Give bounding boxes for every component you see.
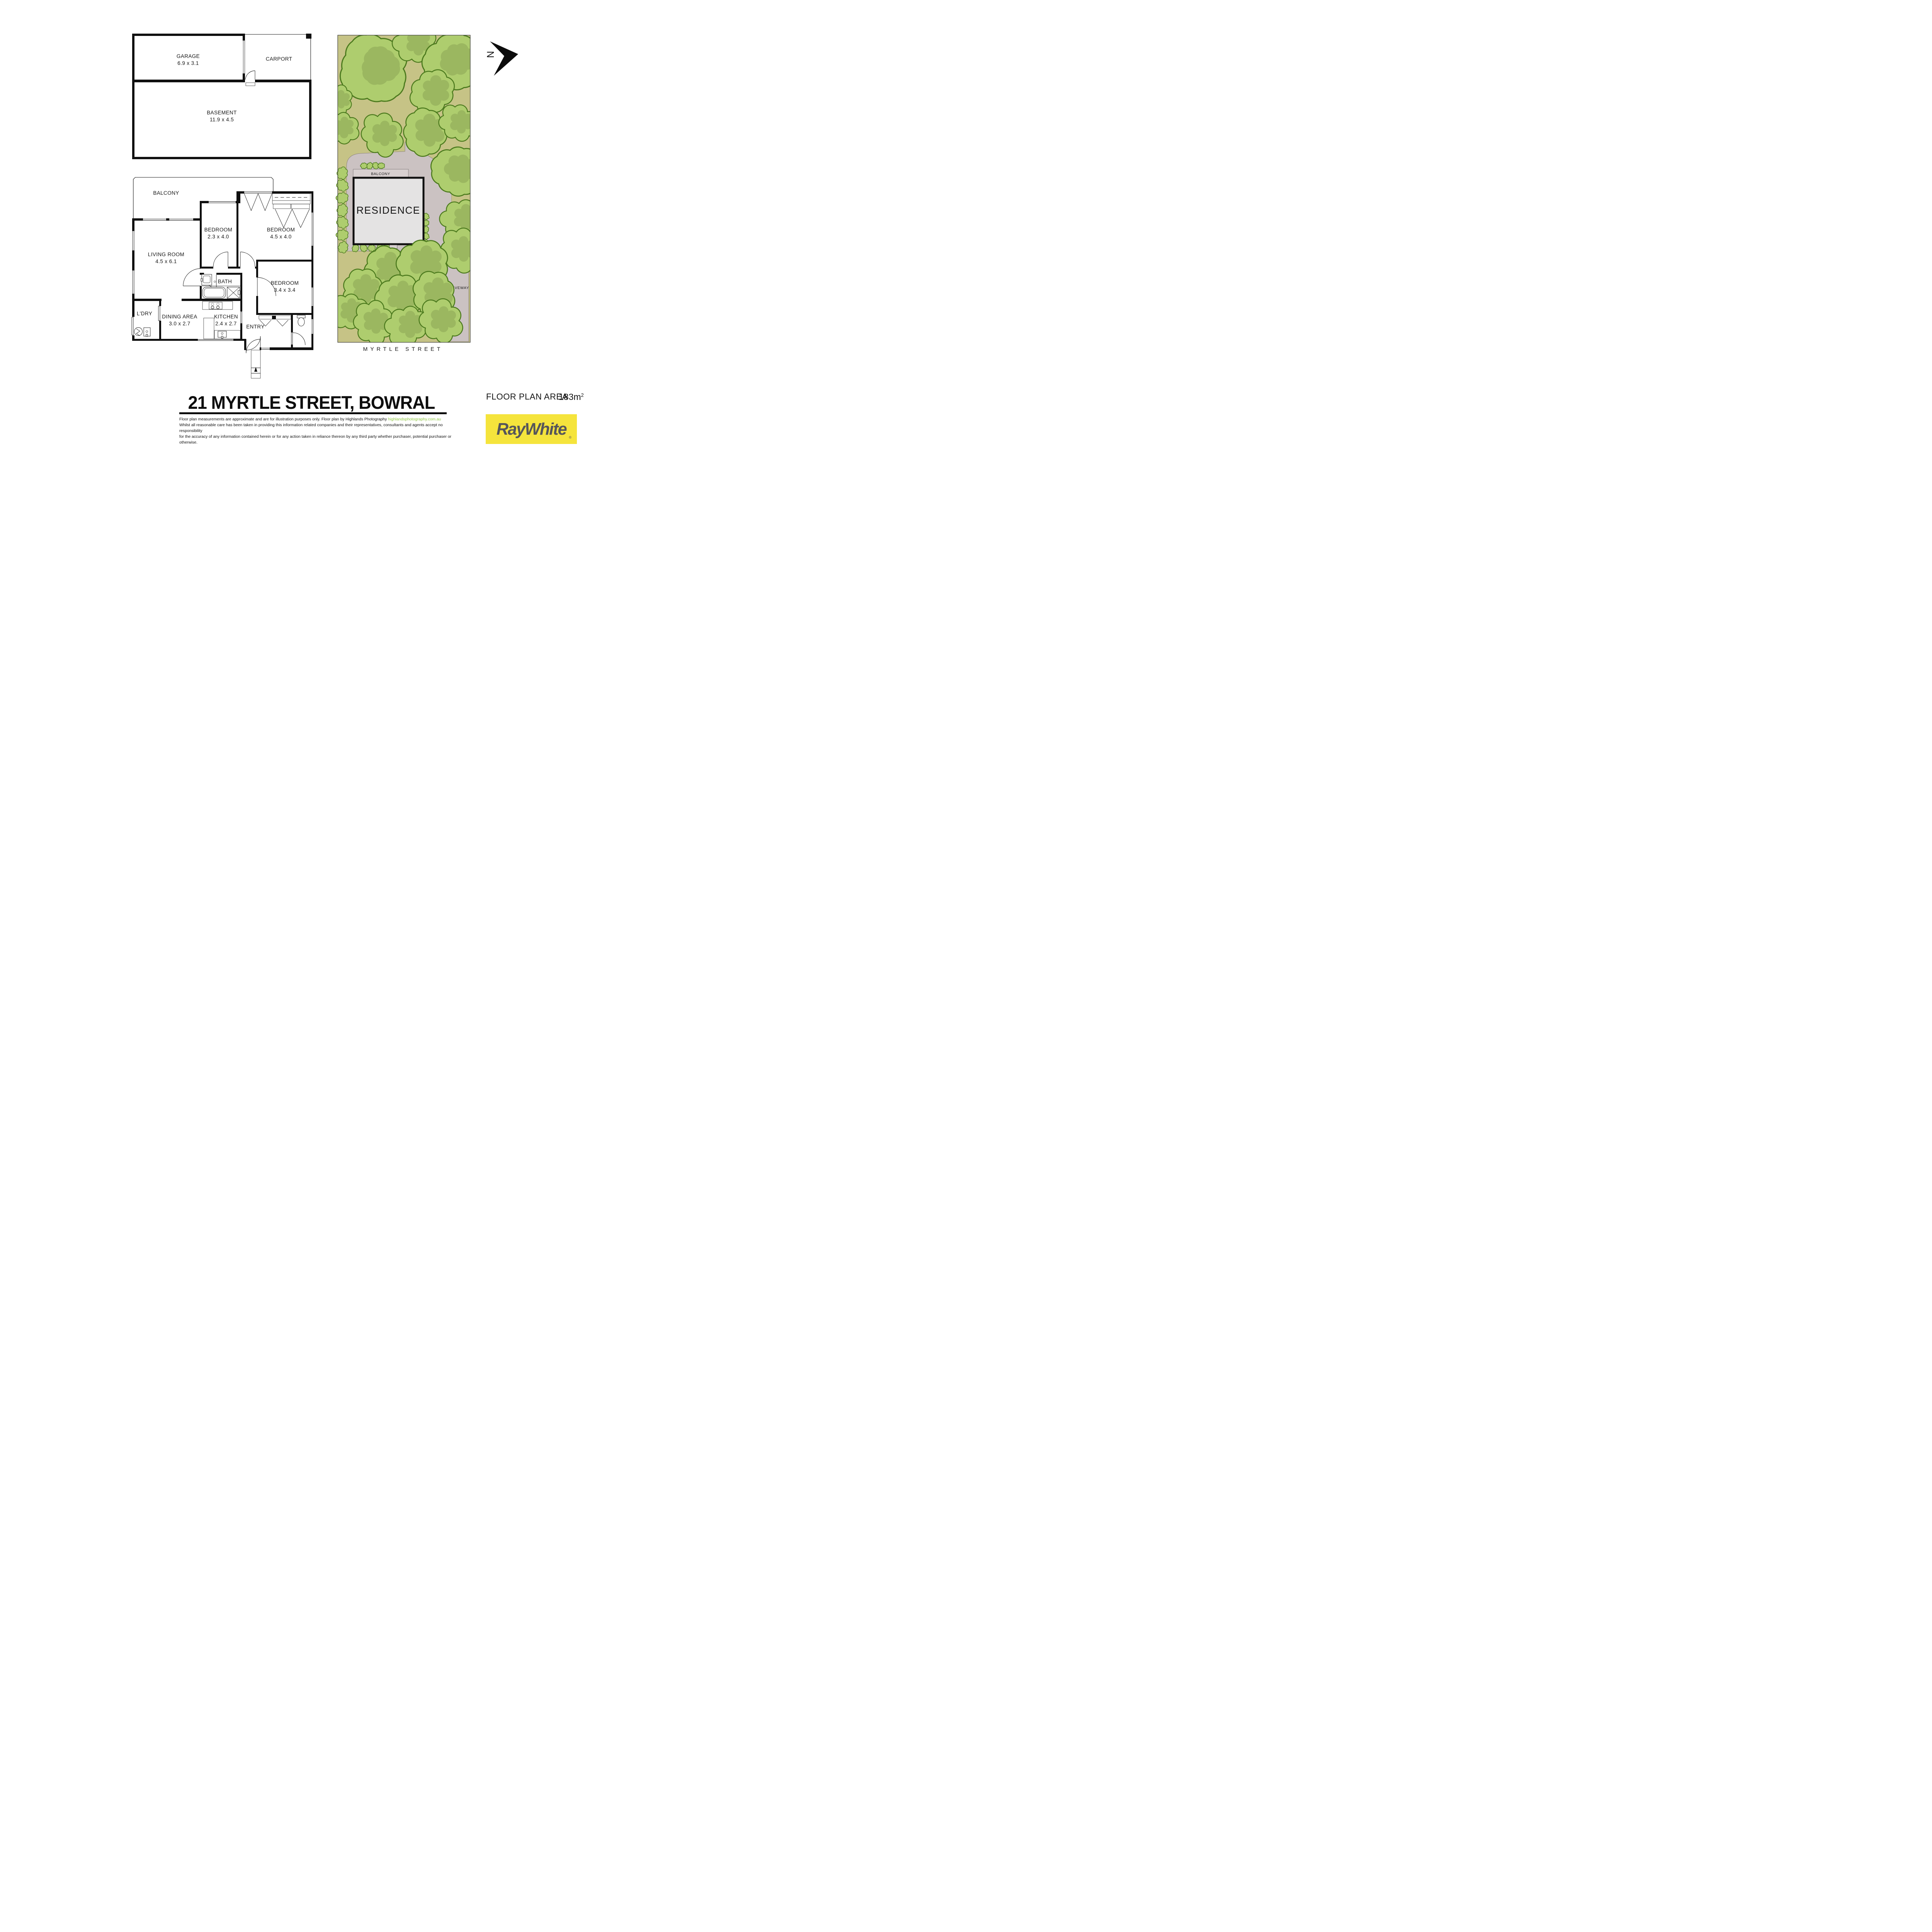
tree-shade: [451, 236, 476, 262]
laundry-fixtures: [134, 328, 151, 337]
bedroom3-dims: 3.4 x 3.4: [274, 287, 295, 293]
disclaimer-text: Floor plan measurements are approximate …: [179, 417, 452, 446]
kitchen-dims: 2.4 x 2.7: [215, 321, 236, 327]
bedroom1-label: BEDROOM: [204, 227, 233, 233]
toilet-icon: [297, 315, 305, 326]
stove-icon: [202, 301, 233, 310]
washer-icon: [134, 328, 143, 336]
bathtub-icon: [202, 287, 226, 298]
bedroom3-label: BEDROOM: [271, 280, 299, 286]
disclaimer-1-text: Floor plan measurements are approximate …: [179, 417, 387, 422]
disclaimer-line-1: Floor plan measurements are approximate …: [179, 417, 452, 422]
entry-label: ENTRY: [246, 324, 265, 330]
site-residence-label: RESIDENCE: [356, 204, 420, 216]
dining-dims: 3.0 x 2.7: [169, 321, 190, 327]
area-label: FLOOR PLAN AREA: [486, 392, 568, 402]
kitchen-label: KITCHEN: [214, 314, 238, 320]
area-number: 183m: [559, 392, 581, 402]
kitchen-fixtures: [202, 301, 240, 339]
floor-plan-area: FLOOR PLAN AREA 183m2: [486, 392, 587, 402]
tree-icon: [368, 245, 376, 251]
bedroom2-dims: 4.5 x 4.0: [270, 234, 291, 240]
garage-walls: [132, 34, 311, 159]
area-superscript: 2: [581, 392, 584, 398]
garage-dims: 6.9 x 3.1: [177, 60, 199, 66]
tree-icon: [378, 163, 384, 168]
street-label: MYRTLE STREET: [363, 346, 443, 352]
kitchen-sink-icon: [214, 330, 240, 339]
robe-bedroom2: [244, 194, 310, 228]
site-plan: BALCONY RESIDENCE DRIVEWAY MYRTLE STREET: [323, 24, 483, 352]
basement-dims: 11.9 x 4.5: [210, 117, 234, 122]
kitchen-bench: [204, 318, 214, 339]
entry-porch: [251, 350, 260, 378]
garage-plan: GARAGE 6.9 x 3.1 CARPORT BASEMENT 11.9 x…: [132, 34, 311, 159]
page-title: 21 MYRTLE STREET, BOWRAL: [182, 392, 441, 413]
area-value: 183m2: [559, 392, 584, 402]
footer-divider: [179, 412, 447, 414]
raywhite-logo: RayWhite ®: [486, 414, 577, 444]
laundry-label: L'DRY: [137, 311, 152, 316]
registered-mark: ®: [569, 435, 571, 439]
bath-fixtures: [201, 274, 240, 298]
north-label: N: [485, 51, 496, 58]
disclaimer-line-3: for the accuracy of any information cont…: [179, 434, 452, 446]
bedroom2-label: BEDROOM: [267, 227, 295, 233]
brand-name: RayWhite: [497, 420, 566, 439]
disclaimer-line-2: Whilst all reasonable care has been take…: [179, 422, 452, 434]
north-arrow-icon: N: [485, 41, 518, 76]
tree-icon: [360, 163, 367, 168]
living-label: LIVING ROOM: [148, 252, 184, 257]
bedroom1-dims: 2.3 x 4.0: [207, 234, 229, 240]
shower-icon: [227, 287, 240, 298]
site-balcony-label: BALCONY: [371, 172, 390, 176]
main-floor-plan: BALCONY BEDROOM 2.3 x 4.0 BEDROOM 4.5 x …: [132, 177, 313, 378]
disclaimer-link[interactable]: highlandsphotography.com.au: [388, 417, 441, 422]
bath-label: BATH: [218, 279, 232, 284]
floorplan-page: { "garage_plan": { "garage": {"name": "G…: [0, 0, 600, 448]
balcony-label: BALCONY: [153, 190, 179, 196]
garage-label: GARAGE: [177, 53, 200, 59]
living-dims: 4.5 x 6.1: [155, 259, 177, 264]
basement-label: BASEMENT: [207, 110, 236, 116]
dining-label: DINING AREA: [162, 314, 197, 320]
balcony-outline: [133, 177, 273, 218]
carport-label: CARPORT: [266, 56, 293, 62]
floorplan-canvas: BALCONY RESIDENCE DRIVEWAY MYRTLE STREET…: [0, 0, 600, 448]
